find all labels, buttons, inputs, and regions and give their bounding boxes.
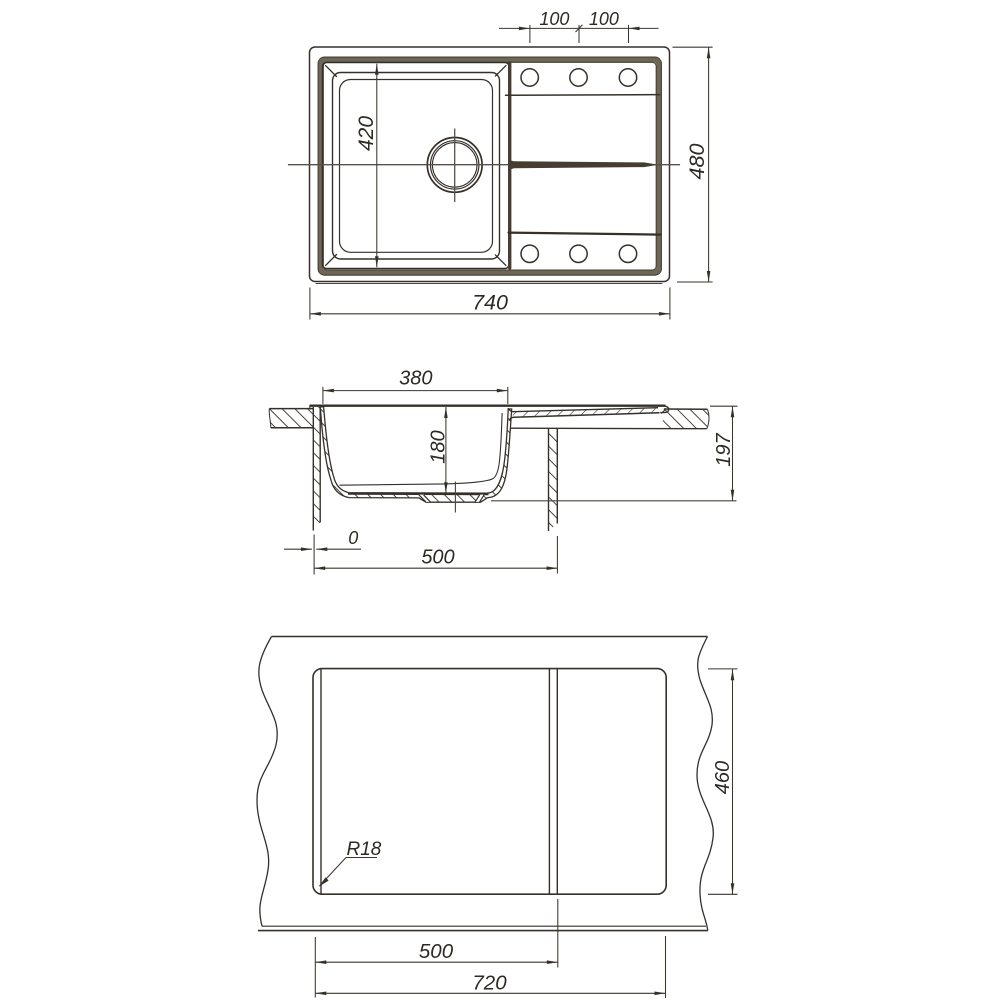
svg-text:420: 420 — [355, 116, 378, 151]
svg-text:500: 500 — [421, 547, 454, 569]
svg-text:100: 100 — [589, 9, 619, 29]
svg-text:500: 500 — [419, 940, 454, 963]
svg-text:180: 180 — [428, 430, 450, 463]
svg-text:0: 0 — [348, 528, 358, 548]
svg-text:197: 197 — [713, 432, 735, 466]
svg-text:720: 720 — [472, 972, 507, 995]
svg-text:740: 740 — [472, 291, 508, 315]
svg-text:480: 480 — [685, 144, 709, 180]
svg-text:100: 100 — [539, 9, 569, 29]
svg-text:460: 460 — [712, 761, 734, 794]
svg-text:380: 380 — [399, 368, 432, 390]
svg-text:R18: R18 — [347, 839, 382, 860]
